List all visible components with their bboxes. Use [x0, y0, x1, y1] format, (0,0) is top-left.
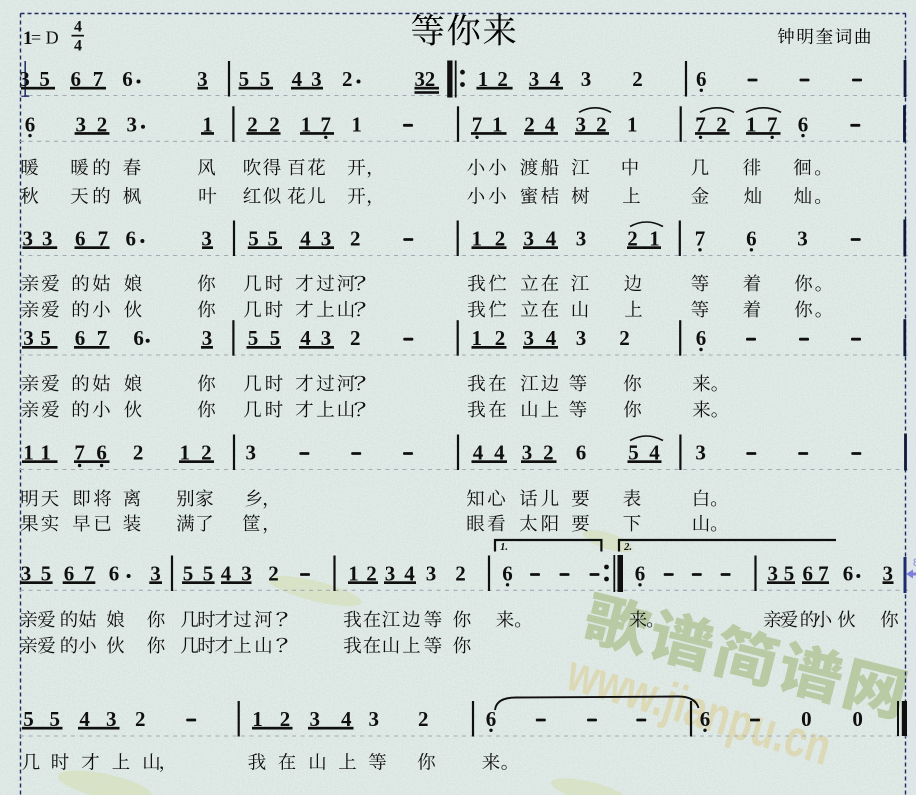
- svg-text:1: 1: [627, 112, 638, 136]
- svg-text:6: 6: [746, 227, 757, 251]
- svg-text:6: 6: [843, 562, 854, 586]
- svg-text:6: 6: [122, 67, 133, 91]
- svg-text:2.: 2.: [623, 542, 632, 553]
- svg-text:6: 6: [696, 326, 707, 350]
- svg-text:6: 6: [109, 562, 120, 586]
- svg-text:6: 6: [696, 67, 707, 91]
- svg-text:6: 6: [25, 112, 36, 136]
- svg-text:6: 6: [133, 326, 144, 350]
- svg-text:2: 2: [342, 67, 353, 91]
- svg-text:3: 3: [581, 67, 592, 91]
- svg-text:2: 2: [133, 441, 144, 465]
- svg-text:6: 6: [576, 441, 587, 465]
- svg-text:3: 3: [797, 227, 808, 251]
- svg-text:2: 2: [268, 562, 279, 586]
- svg-text:6: 6: [502, 562, 513, 586]
- svg-text:4: 4: [74, 19, 82, 36]
- svg-text:3: 3: [368, 707, 379, 731]
- svg-text:6: 6: [798, 112, 809, 136]
- svg-text:2: 2: [418, 707, 429, 731]
- svg-text:2: 2: [632, 67, 643, 91]
- svg-text:2: 2: [350, 227, 361, 251]
- svg-text:1.: 1.: [500, 542, 508, 553]
- svg-text:3: 3: [695, 441, 706, 465]
- svg-text:3: 3: [246, 441, 257, 465]
- svg-text:6: 6: [635, 562, 646, 586]
- svg-text:2: 2: [135, 707, 146, 731]
- svg-text:6: 6: [700, 707, 711, 731]
- svg-text:1: 1: [351, 112, 362, 136]
- svg-text:0: 0: [801, 707, 812, 731]
- svg-text:3: 3: [127, 112, 138, 136]
- svg-text:2: 2: [619, 326, 630, 350]
- svg-text:6: 6: [126, 227, 137, 251]
- svg-text:3: 3: [576, 227, 587, 251]
- svg-text:6: 6: [486, 707, 497, 731]
- svg-text:7: 7: [695, 227, 706, 251]
- svg-text:4: 4: [74, 38, 82, 55]
- svg-text:0: 0: [852, 707, 863, 731]
- svg-text:2: 2: [455, 562, 466, 586]
- svg-text:= D: = D: [31, 28, 59, 48]
- svg-text:2: 2: [350, 326, 361, 350]
- svg-text:3: 3: [576, 326, 587, 350]
- svg-text:3: 3: [426, 562, 437, 586]
